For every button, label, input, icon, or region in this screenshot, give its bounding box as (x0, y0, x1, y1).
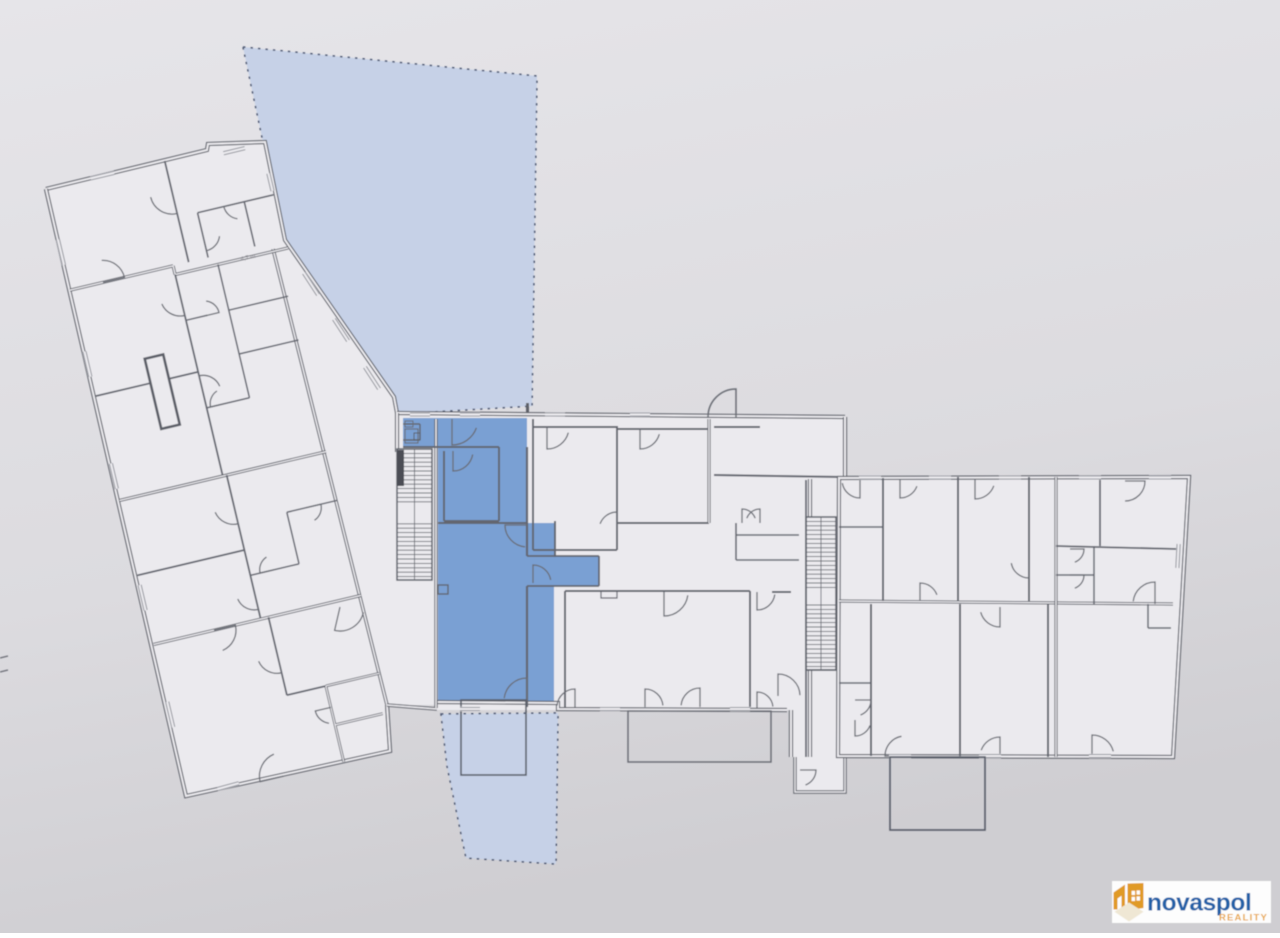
svg-text:REALITY: REALITY (1219, 913, 1268, 924)
